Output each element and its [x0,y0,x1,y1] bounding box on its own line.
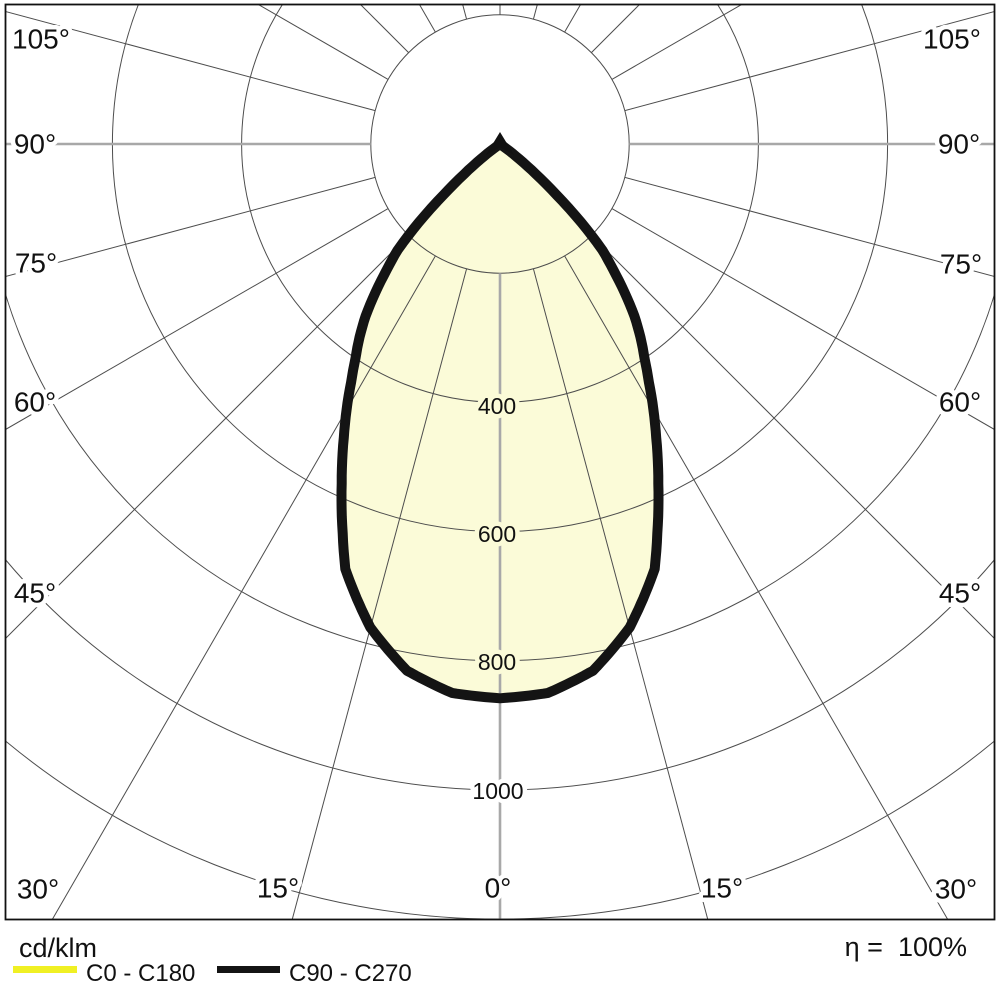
angle-label-6: 15° [257,873,299,904]
angle-label-3: 60° [14,387,56,418]
angle-label-12: 75° [940,249,982,280]
angle-label-14: 105° [923,24,981,55]
angle-label-0: 105° [12,24,70,55]
plot-area [0,0,1000,1000]
grid-ray-60deg [612,209,1000,794]
radius-label-1000: 1000 [472,778,523,804]
angle-label-2: 75° [15,248,57,279]
angle-label-13: 90° [938,129,980,160]
light-output-ratio-label: η = 100% [845,932,967,963]
angle-label-8: 15° [701,873,743,904]
angle-label-4: 45° [14,578,56,609]
radius-label-400: 400 [478,393,516,419]
angle-label-1: 90° [14,129,56,160]
angle-label-11: 60° [939,387,981,418]
grid-ray-255deg [0,0,375,111]
angle-label-7: 0° [485,873,512,904]
grid-ray-195deg [164,0,467,19]
radius-label-800: 800 [478,649,516,675]
legend-label-c90-c270: C90 - C270 [289,960,412,988]
grid-ray-300deg [0,209,388,794]
grid-ray-165deg [533,0,836,19]
angle-label-10: 45° [939,578,981,609]
angle-label-9: 30° [935,874,977,905]
photometric-diagram: 105°90°75°60°45°30°15°0°15°30°45°60°75°9… [0,0,1000,1000]
radius-label-600: 600 [478,521,516,547]
legend-swatch-c0-c180 [13,966,77,973]
legend-swatch-c90-c270 [217,966,280,973]
legend-label-c0-c180: C0 - C180 [86,960,195,988]
grid-ray-105deg [625,0,1000,111]
angle-label-5: 30° [17,874,59,905]
polar-chart: 105°90°75°60°45°30°15°0°15°30°45°60°75°9… [0,0,1000,1000]
